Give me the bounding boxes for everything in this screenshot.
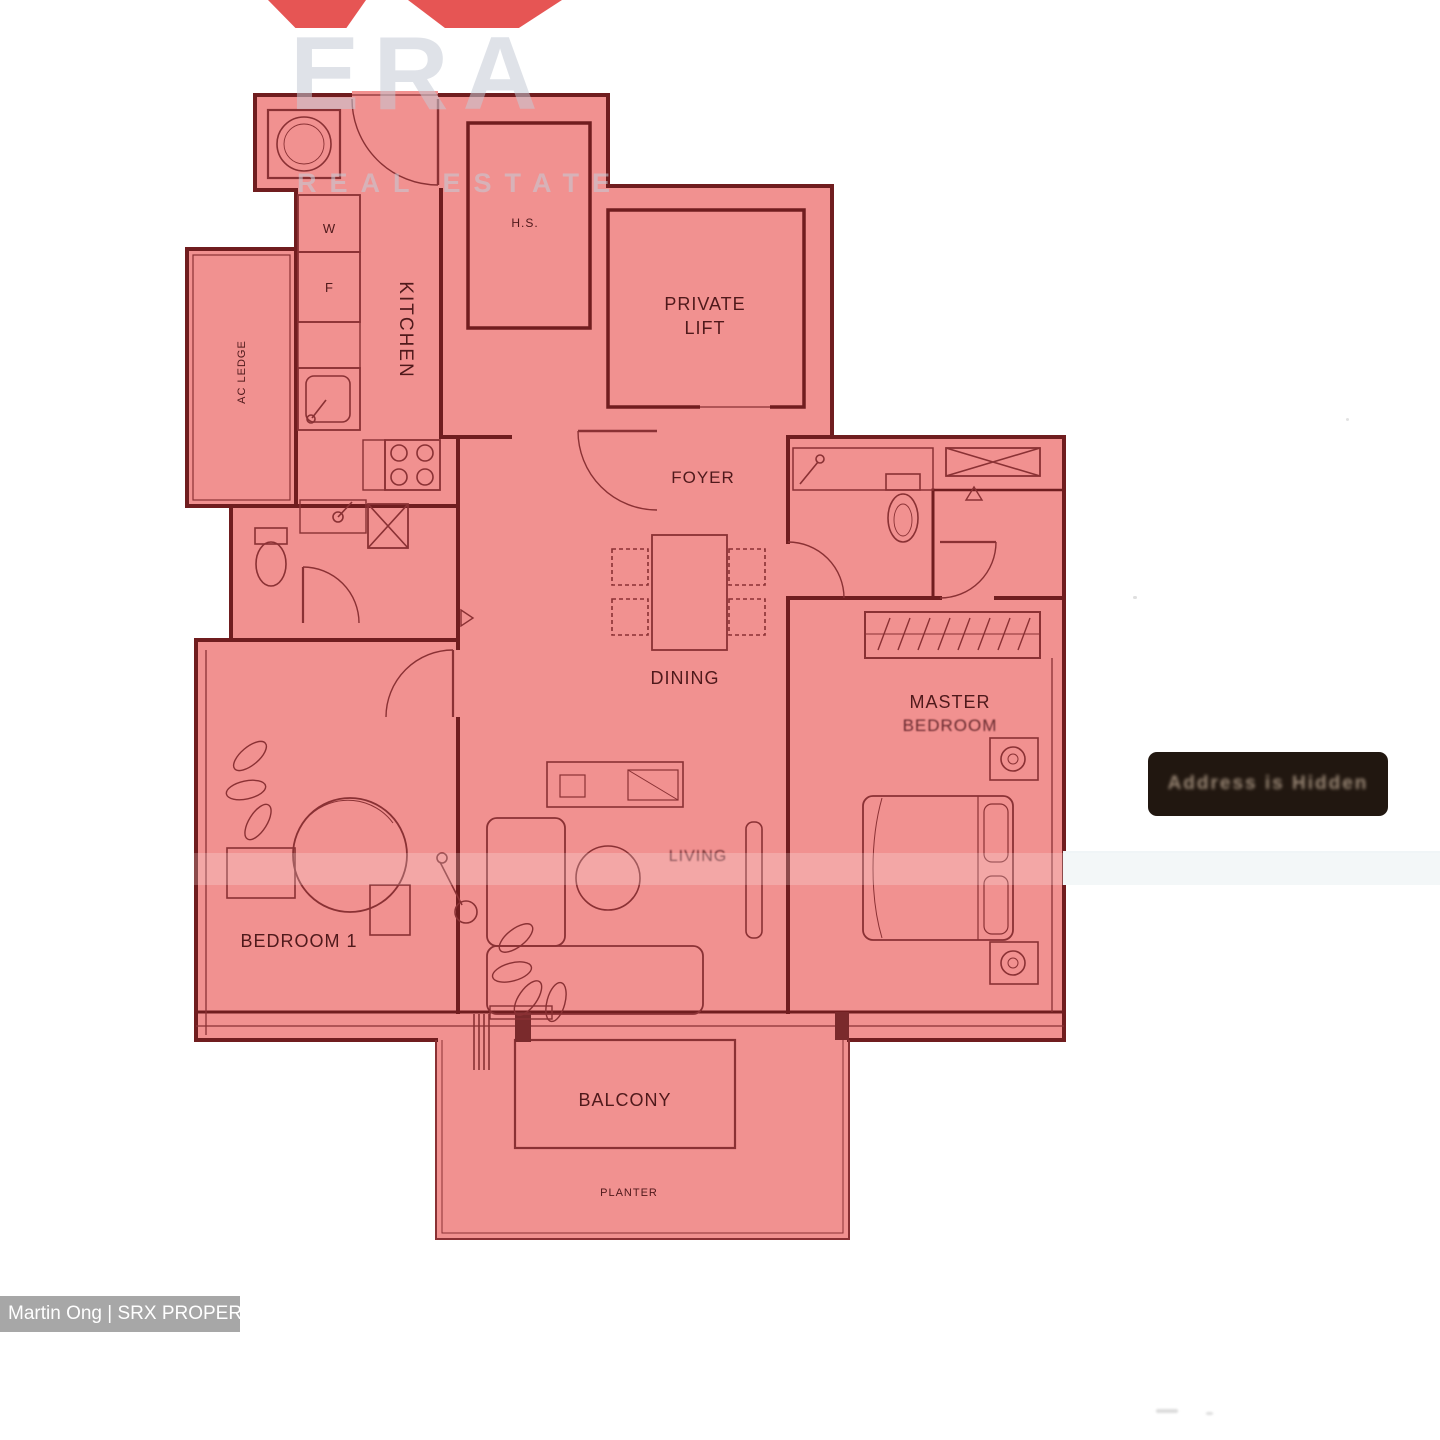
label-kitchen: KITCHEN [395, 281, 416, 378]
obscured-address-badge: Address is Hidden [1148, 752, 1388, 816]
obscured-address-text: Address is Hidden [1168, 773, 1369, 795]
label-master-bedroom: BEDROOM [903, 716, 998, 735]
label-ac-ledge: AC LEDGE [236, 340, 248, 404]
label-bedroom1: BEDROOM 1 [240, 931, 357, 951]
label-dining: DINING [651, 668, 720, 688]
scan-speck [1206, 1412, 1213, 1415]
pillar-balcony-left [515, 1012, 531, 1042]
scan-speck [1133, 596, 1137, 599]
pillar-balcony-right [835, 1012, 849, 1040]
credit-bar: Martin Ong | SRX PROPERTY [0, 1296, 240, 1332]
label-planter: PLANTER [600, 1187, 658, 1199]
scan-speck [1156, 1409, 1178, 1413]
label-private-lift-2: LIFT [684, 318, 725, 338]
label-private-lift-1: PRIVATE [664, 294, 745, 314]
credit-text: Martin Ong | SRX PROPERTY [8, 1303, 266, 1324]
label-balcony: BALCONY [578, 1090, 671, 1110]
label-hs: H.S. [511, 216, 538, 230]
floorplan-page: W F KITCHEN H.S. PRIVATE LIFT FOYER AC L… [0, 0, 1440, 1440]
floorplan-svg: W F KITCHEN H.S. PRIVATE LIFT FOYER AC L… [0, 0, 1440, 1440]
label-foyer: FOYER [671, 468, 735, 487]
scan-band [0, 853, 1440, 885]
label-fridge: F [325, 280, 333, 295]
scan-speck [1346, 418, 1349, 421]
unit-fill [187, 95, 1064, 1239]
label-washer: W [323, 221, 336, 236]
label-master: MASTER [909, 692, 990, 712]
